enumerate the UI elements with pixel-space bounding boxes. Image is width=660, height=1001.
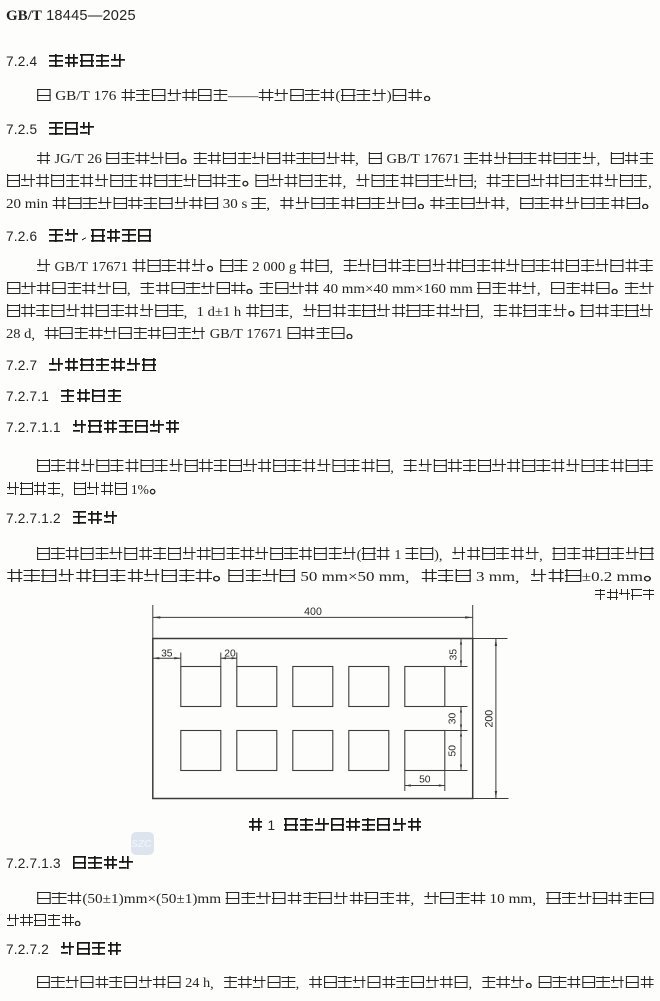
- svg-text:30: 30: [448, 713, 459, 725]
- svg-text:20: 20: [224, 649, 236, 660]
- svg-text:200: 200: [483, 710, 495, 728]
- svg-text:50: 50: [419, 775, 431, 786]
- svg-text:400: 400: [304, 606, 322, 618]
- svg-text:50: 50: [448, 745, 459, 757]
- svg-text:35: 35: [161, 649, 173, 660]
- svg-text:35: 35: [448, 649, 459, 661]
